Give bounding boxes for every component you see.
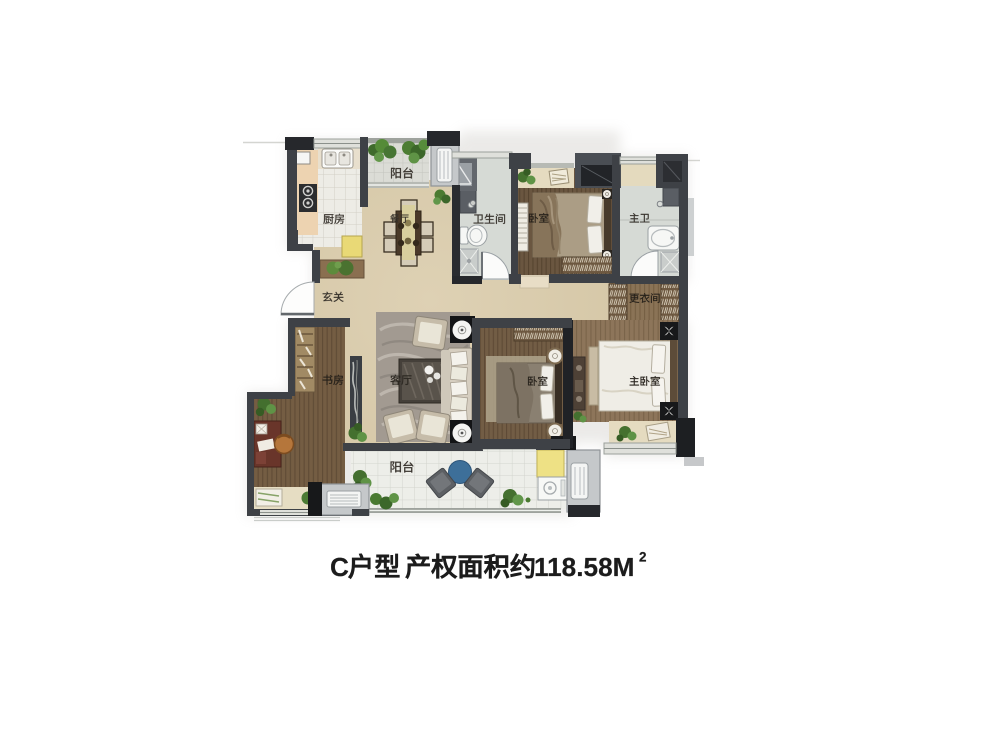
svg-text:C: C: [330, 552, 349, 582]
svg-text:2: 2: [639, 550, 647, 565]
svg-text:118.58M: 118.58M: [534, 552, 634, 582]
